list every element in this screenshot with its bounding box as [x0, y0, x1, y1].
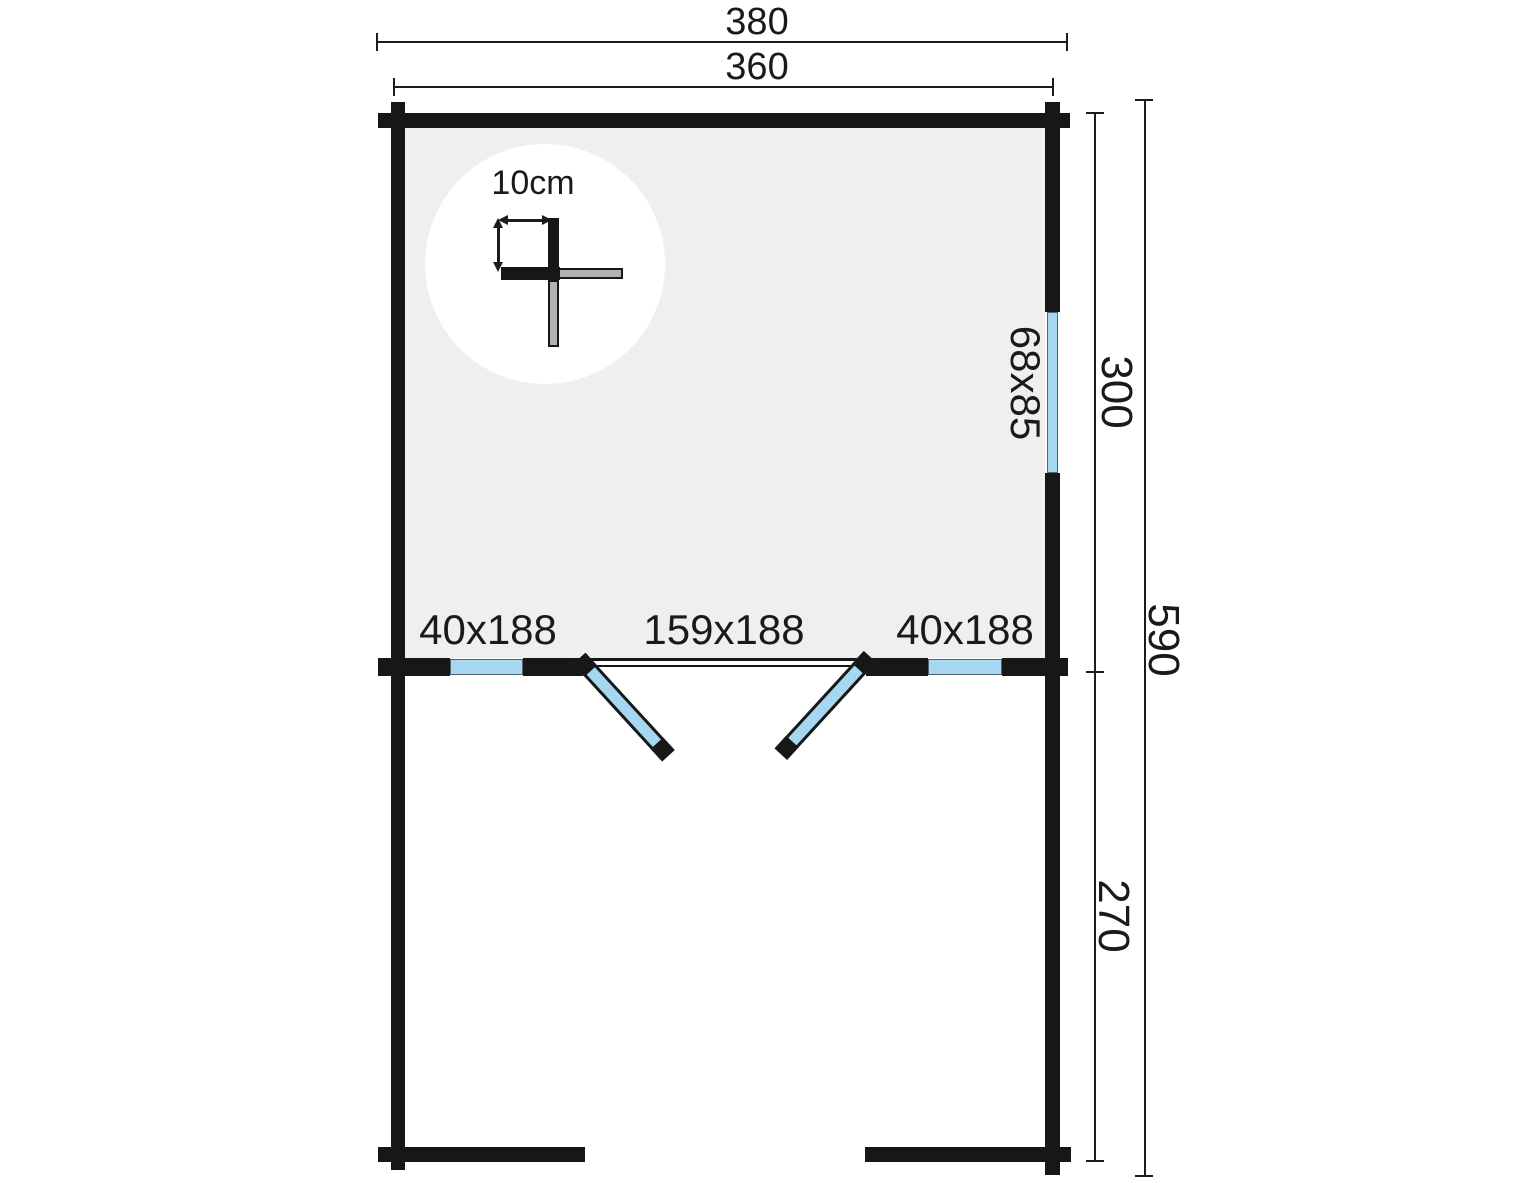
- dim-wall-width-label: 360: [725, 48, 788, 86]
- wall-left: [391, 102, 405, 1170]
- window-left-label: 40x188: [419, 609, 557, 651]
- dim-overall-width-label: 380: [725, 3, 788, 41]
- dim-total-depth-label: 590: [1141, 603, 1185, 676]
- dim-depth-line: [1094, 113, 1096, 1162]
- window-side-label: 68x85: [1004, 326, 1046, 440]
- dim-overall-width-line: [377, 41, 1068, 43]
- detail-wall-thickness-label: 10cm: [491, 166, 574, 200]
- dim-tick: [1086, 1160, 1104, 1162]
- door-opening-threshold: [583, 658, 866, 667]
- window-right: [928, 659, 1002, 675]
- wall-middle-segment: [1002, 658, 1068, 676]
- door-leaf-left: [573, 653, 675, 762]
- wall-middle-segment: [523, 658, 583, 676]
- dim-tick: [1052, 78, 1054, 96]
- detail-log-end-vertical: [548, 280, 559, 347]
- dim-tick: [1135, 99, 1153, 101]
- wall-right-lower: [1045, 473, 1060, 1175]
- window-right-label: 40x188: [896, 609, 1034, 651]
- wall-top: [378, 113, 1070, 128]
- dim-wall-width-line: [394, 86, 1054, 88]
- dim-tick: [376, 33, 378, 51]
- dim-tick: [1066, 33, 1068, 51]
- detail-arrow-horizontal: [507, 219, 543, 222]
- door-end-cap: [775, 736, 799, 760]
- wall-terrace-bottom-left: [378, 1147, 585, 1162]
- dim-room-depth-label: 300: [1094, 355, 1138, 428]
- dim-tick: [1135, 1175, 1153, 1177]
- window-left: [450, 659, 523, 675]
- detail-log-section-horizontal: [501, 267, 560, 280]
- door-leaf-right: [775, 651, 877, 760]
- wall-middle-segment: [378, 658, 450, 676]
- dim-terrace-depth-label: 270: [1091, 879, 1135, 952]
- dim-tick: [393, 78, 395, 96]
- door-end-cap: [651, 737, 675, 761]
- wall-right-upper: [1045, 102, 1060, 312]
- dim-tick: [1086, 112, 1104, 114]
- floor-plan: 10cm 40x188 159x188 40x188 68x85 38: [0, 0, 1536, 1193]
- dim-tick: [1086, 671, 1104, 673]
- arrowhead-up-icon: [493, 218, 503, 228]
- detail-log-end-horizontal: [558, 268, 623, 279]
- door-label: 159x188: [643, 609, 804, 651]
- detail-arrow-vertical: [497, 227, 500, 263]
- wall-terrace-bottom-right: [865, 1147, 1071, 1162]
